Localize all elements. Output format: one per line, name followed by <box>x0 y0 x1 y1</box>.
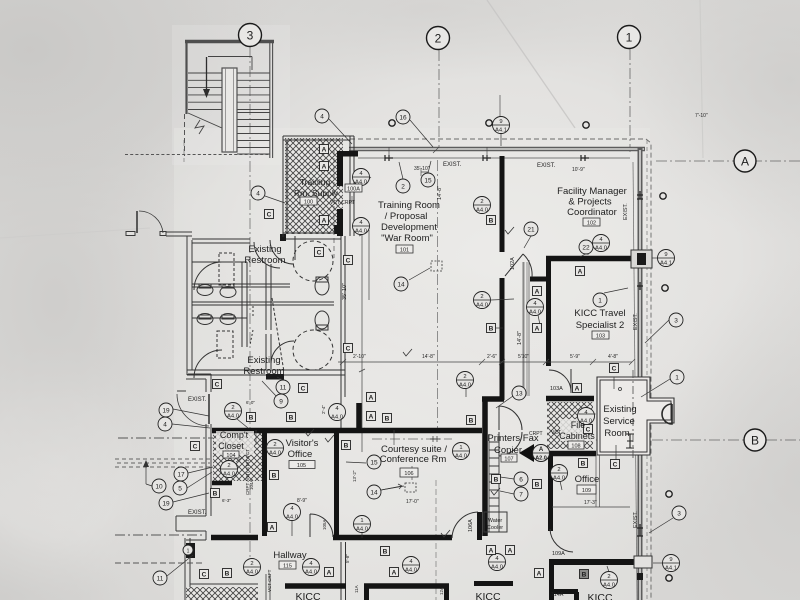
svg-text:B: B <box>225 571 230 578</box>
svg-text:21: 21 <box>527 227 535 234</box>
svg-text:2'-6": 2'-6" <box>487 354 497 360</box>
svg-text:VCT CRPT: VCT CRPT <box>330 200 355 206</box>
svg-text:C: C <box>267 212 272 219</box>
svg-text:5: 5 <box>178 486 182 493</box>
svg-text:Conference Rm: Conference Rm <box>380 454 447 465</box>
svg-text:EXIST.: EXIST. <box>188 397 207 403</box>
svg-text:Service: Service <box>603 416 635 427</box>
svg-text:A: A <box>322 218 327 225</box>
svg-text:KICC: KICC <box>475 591 501 600</box>
svg-text:A4.0: A4.0 <box>455 454 467 460</box>
svg-text:A4.0: A4.0 <box>227 414 239 420</box>
svg-text:Restroom: Restroom <box>243 366 284 377</box>
svg-text:106A: 106A <box>468 519 474 532</box>
svg-text:14: 14 <box>370 490 378 497</box>
svg-text:KICC Travel: KICC Travel <box>574 308 625 319</box>
svg-text:2: 2 <box>480 199 483 205</box>
svg-text:13'-2": 13'-2" <box>352 470 357 482</box>
svg-text:KICC: KICC <box>295 591 321 600</box>
svg-text:A: A <box>369 395 374 402</box>
svg-text:EXIST.: EXIST. <box>443 162 462 168</box>
svg-text:2: 2 <box>227 463 230 469</box>
svg-text:A2.0: A2.0 <box>535 456 547 462</box>
svg-text:14'-8": 14'-8" <box>422 354 435 360</box>
svg-text:Room: Room <box>604 428 629 439</box>
svg-text:105A: 105A <box>322 519 327 530</box>
svg-text:10: 10 <box>155 484 163 491</box>
svg-text:12A: 12A <box>439 587 444 595</box>
svg-text:19: 19 <box>162 408 170 415</box>
svg-text:1: 1 <box>598 298 602 305</box>
svg-text:104: 104 <box>226 453 235 459</box>
svg-text:115: 115 <box>283 564 292 570</box>
svg-text:102: 102 <box>587 221 596 227</box>
svg-text:11: 11 <box>157 576 164 583</box>
svg-text:Rm. Supply: Rm. Supply <box>294 188 339 198</box>
svg-text:9: 9 <box>499 119 502 125</box>
svg-text:Office: Office <box>288 449 313 460</box>
svg-text:C: C <box>317 250 322 257</box>
svg-text:File: File <box>571 420 586 430</box>
svg-text:C: C <box>301 386 306 393</box>
svg-text:5'-9": 5'-9" <box>570 354 580 360</box>
svg-text:A: A <box>741 155 749 169</box>
svg-text:13: 13 <box>515 391 523 398</box>
svg-text:B: B <box>582 572 587 579</box>
svg-text:14: 14 <box>397 282 405 289</box>
svg-text:17'-3": 17'-3" <box>584 500 597 506</box>
svg-text:14'-8": 14'-8" <box>437 186 443 200</box>
svg-text:B: B <box>249 415 254 422</box>
svg-text:A: A <box>489 548 494 555</box>
svg-text:Training: Training <box>300 177 331 187</box>
svg-text:1: 1 <box>675 375 679 382</box>
svg-text:A: A <box>539 447 544 453</box>
svg-text:2: 2 <box>401 184 405 191</box>
svg-text:Development: Development <box>381 222 437 233</box>
svg-text:A4.0: A4.0 <box>529 310 541 316</box>
svg-text:B: B <box>535 482 540 489</box>
svg-text:Comp't: Comp't <box>220 430 249 440</box>
svg-text:109A: 109A <box>552 551 565 557</box>
svg-text:B: B <box>383 549 388 556</box>
svg-text:5'-8": 5'-8" <box>345 554 350 563</box>
svg-text:9: 9 <box>669 557 672 563</box>
svg-text:1: 1 <box>187 549 190 555</box>
svg-text:KICC: KICC <box>587 592 613 600</box>
svg-text:3: 3 <box>677 511 681 518</box>
svg-text:A4.1: A4.1 <box>660 261 672 267</box>
svg-text:A: A <box>322 147 327 154</box>
svg-text:2: 2 <box>463 374 466 380</box>
svg-text:Visitor's: Visitor's <box>286 438 319 449</box>
svg-text:A4.1: A4.1 <box>495 128 507 134</box>
svg-text:C: C <box>612 366 617 373</box>
svg-text:Hallway: Hallway <box>273 550 307 561</box>
svg-text:A4.0: A4.0 <box>286 515 298 521</box>
svg-text:EXIST.: EXIST. <box>537 163 556 169</box>
svg-text:100A: 100A <box>347 187 360 193</box>
svg-text:C: C <box>202 572 207 579</box>
svg-text:Training Room: Training Room <box>378 200 440 211</box>
svg-text:B: B <box>289 415 294 422</box>
svg-text:19: 19 <box>162 501 170 508</box>
svg-text:4: 4 <box>163 422 167 429</box>
svg-text:9: 9 <box>279 399 283 406</box>
svg-text:A4.0: A4.0 <box>476 208 488 214</box>
svg-text:Existing: Existing <box>247 355 280 366</box>
svg-text:EXIST.: EXIST. <box>188 510 207 516</box>
svg-text:17: 17 <box>177 472 185 479</box>
svg-text:A: A <box>508 548 513 555</box>
svg-text:6'-0": 6'-0" <box>246 400 255 405</box>
svg-text:A: A <box>369 414 374 421</box>
svg-text:Existing: Existing <box>603 404 636 415</box>
svg-text:VCT CRPT: VCT CRPT <box>267 569 272 592</box>
svg-text:35'-10": 35'-10" <box>414 166 430 172</box>
svg-text:6: 6 <box>519 477 523 484</box>
svg-text:EXIST.: EXIST. <box>633 511 639 528</box>
svg-text:/ Proposal: / Proposal <box>385 211 428 222</box>
svg-text:B: B <box>344 443 349 450</box>
svg-text:4'-8": 4'-8" <box>608 354 618 360</box>
svg-text:B: B <box>213 491 218 498</box>
svg-text:6'-3": 6'-3" <box>222 498 231 503</box>
svg-text:& Projects: & Projects <box>568 197 612 208</box>
svg-text:102A: 102A <box>510 257 516 270</box>
svg-text:14'-8": 14'-8" <box>517 331 523 345</box>
svg-text:Existing: Existing <box>248 244 281 255</box>
svg-text:A4.0: A4.0 <box>269 451 281 457</box>
svg-text:A4.1: A4.1 <box>665 566 677 572</box>
svg-text:109: 109 <box>582 488 591 494</box>
svg-text:EXIST.: EXIST. <box>633 313 639 330</box>
svg-text:B: B <box>469 418 474 425</box>
svg-text:11: 11 <box>280 385 287 392</box>
svg-text:A4.0: A4.0 <box>553 476 565 482</box>
svg-text:17'-0": 17'-0" <box>406 499 419 505</box>
svg-text:22: 22 <box>582 245 590 252</box>
svg-text:106: 106 <box>404 471 413 477</box>
svg-text:5'10": 5'10" <box>518 354 529 360</box>
svg-text:B: B <box>385 416 390 423</box>
svg-text:C: C <box>346 346 351 353</box>
svg-text:C: C <box>613 462 618 469</box>
svg-text:3: 3 <box>674 318 678 325</box>
svg-text:A4.0: A4.0 <box>603 583 615 589</box>
svg-text:4: 4 <box>256 191 260 198</box>
svg-text:1: 1 <box>626 31 633 45</box>
svg-text:1: 1 <box>360 518 363 524</box>
svg-text:10'-9": 10'-9" <box>572 167 585 173</box>
svg-text:16: 16 <box>399 115 407 122</box>
svg-text:A4.0: A4.0 <box>459 383 471 389</box>
svg-text:103A: 103A <box>550 386 563 392</box>
svg-text:11A: 11A <box>354 585 359 593</box>
svg-text:108: 108 <box>571 444 580 450</box>
svg-text:B: B <box>751 434 759 448</box>
svg-text:A: A <box>535 326 540 333</box>
svg-text:B: B <box>272 473 277 480</box>
svg-text:A4.0: A4.0 <box>355 229 367 235</box>
svg-text:A: A <box>392 570 397 577</box>
svg-text:2: 2 <box>231 405 234 411</box>
svg-text:15: 15 <box>370 460 378 467</box>
svg-text:A: A <box>270 525 275 532</box>
svg-text:Restroom: Restroom <box>244 255 285 266</box>
svg-text:A: A <box>575 386 580 393</box>
svg-text:4: 4 <box>320 114 324 121</box>
svg-text:A: A <box>327 570 332 577</box>
svg-text:101: 101 <box>400 248 409 254</box>
svg-text:A: A <box>322 164 327 171</box>
svg-text:A: A <box>578 269 583 276</box>
svg-text:B: B <box>581 461 586 468</box>
svg-text:2: 2 <box>435 32 442 46</box>
svg-text:Office: Office <box>575 474 600 485</box>
svg-text:Closet: Closet <box>218 441 244 451</box>
svg-text:A4.0: A4.0 <box>223 472 235 478</box>
svg-text:2'-10": 2'-10" <box>353 354 366 360</box>
svg-text:15: 15 <box>424 178 432 185</box>
svg-text:7'-10": 7'-10" <box>695 113 708 119</box>
svg-text:A: A <box>537 571 542 578</box>
svg-text:2: 2 <box>557 467 560 473</box>
svg-text:A4.0: A4.0 <box>491 565 503 571</box>
svg-text:A: A <box>535 289 540 296</box>
svg-text:C: C <box>346 258 351 265</box>
svg-text:Cooler: Cooler <box>487 525 503 531</box>
svg-text:9: 9 <box>664 252 667 258</box>
svg-text:114A: 114A <box>551 592 564 598</box>
svg-text:104A: 104A <box>249 479 254 490</box>
svg-text:2: 2 <box>480 294 483 300</box>
svg-text:A4.0: A4.0 <box>356 527 368 533</box>
svg-text:"War Room": "War Room" <box>381 233 433 244</box>
svg-text:Cabinets: Cabinets <box>559 431 595 441</box>
svg-text:A4.0: A4.0 <box>305 570 317 576</box>
svg-text:7: 7 <box>519 492 523 499</box>
svg-text:8'-9": 8'-9" <box>297 498 307 504</box>
svg-text:3: 3 <box>247 29 254 43</box>
svg-text:VCT: VCT <box>551 430 561 436</box>
svg-text:35'-10": 35'-10" <box>342 283 348 300</box>
svg-text:B: B <box>489 218 494 225</box>
svg-text:A4.0: A4.0 <box>331 415 343 421</box>
svg-text:B: B <box>489 326 494 333</box>
svg-text:A4.0: A4.0 <box>246 570 258 576</box>
svg-text:Specialist 2: Specialist 2 <box>576 320 625 331</box>
svg-text:Coordinator: Coordinator <box>567 207 617 218</box>
svg-text:CRPT: CRPT <box>529 431 543 437</box>
svg-text:103: 103 <box>596 334 605 340</box>
svg-text:C: C <box>193 444 198 451</box>
svg-text:A4.0: A4.0 <box>405 568 417 574</box>
svg-text:C: C <box>215 382 220 389</box>
svg-text:B: B <box>494 477 499 484</box>
svg-text:2: 2 <box>273 442 276 448</box>
svg-text:2: 2 <box>250 561 253 567</box>
svg-text:107: 107 <box>504 457 513 463</box>
svg-text:100: 100 <box>304 200 313 206</box>
svg-text:A4.0: A4.0 <box>595 246 607 252</box>
svg-text:2: 2 <box>607 574 610 580</box>
svg-text:1: 1 <box>459 445 462 451</box>
svg-text:105: 105 <box>297 463 306 469</box>
svg-text:2'-4": 2'-4" <box>321 405 326 414</box>
svg-text:Water: Water <box>488 518 503 524</box>
svg-text:EXIST.: EXIST. <box>623 203 629 220</box>
svg-text:A4.0: A4.0 <box>476 303 488 309</box>
svg-text:Facility Manager: Facility Manager <box>557 186 627 197</box>
